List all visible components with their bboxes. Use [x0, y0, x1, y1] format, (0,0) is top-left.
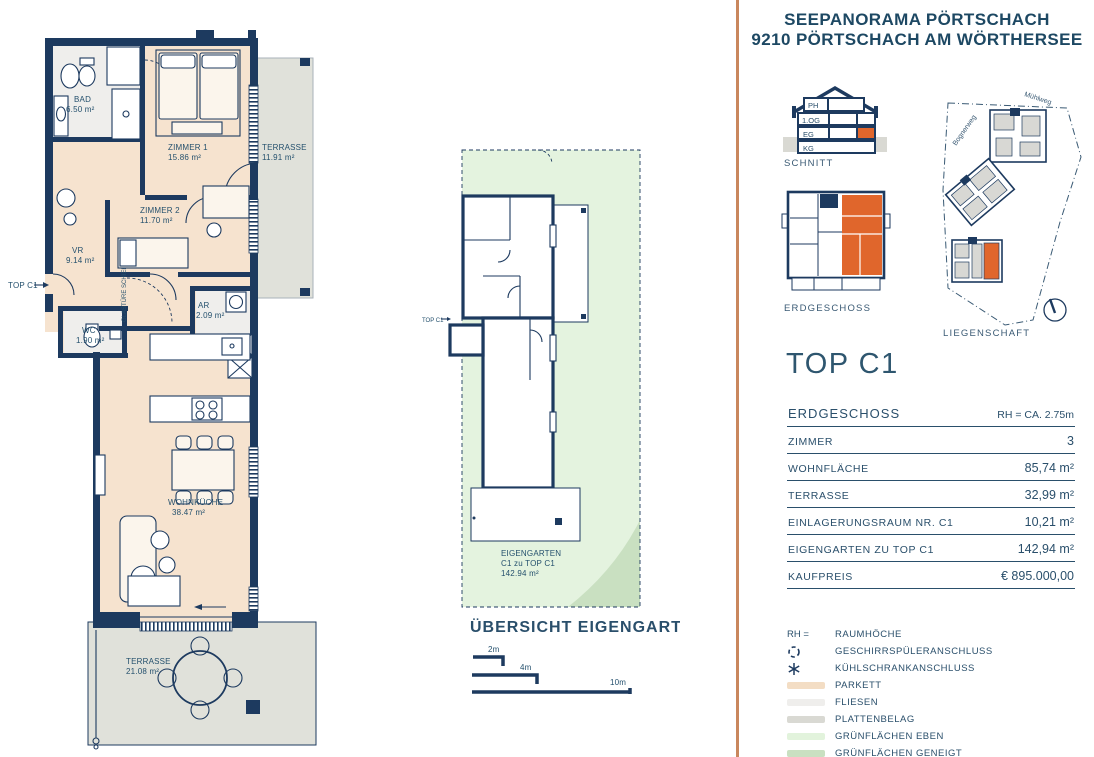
svg-text:WC: WC [82, 326, 96, 335]
building-north [990, 108, 1046, 162]
spec-row: EIGENGARTEN ZU TOP C1 142,94 m² [787, 535, 1075, 562]
dining-set [172, 436, 234, 504]
overview-entrance-label: TOP C1 [422, 317, 451, 324]
legend-row: GESCHIRRSPÜLERANSCHLUSS [787, 643, 1075, 660]
svg-text:38.47 m²: 38.47 m² [172, 508, 205, 517]
spec-row: ZIMMER 3 [787, 427, 1075, 454]
terrace-lower-area [88, 622, 316, 745]
spec-table: ERDGESCHOSS RH = CA. 2.75m ZIMMER 3 WOHN… [787, 399, 1075, 589]
svg-text:VR: VR [72, 246, 84, 255]
svg-text:ZIMMER 1: ZIMMER 1 [168, 143, 208, 152]
legend-row: GRÜNFLÄCHEN EBEN [787, 728, 1075, 745]
svg-text:4m: 4m [520, 663, 532, 672]
spec-row: WOHNFLÄCHE 85,74 m² [787, 454, 1075, 481]
site-plan-label: LIEGENSCHAFT [943, 328, 1030, 339]
svg-text:ZIMMER 2: ZIMMER 2 [140, 206, 180, 215]
section-highlight-unit [857, 127, 875, 139]
svg-text:EG: EG [803, 130, 814, 139]
parkett-swatch [787, 682, 825, 689]
svg-text:KG: KG [803, 144, 814, 153]
svg-text:2.09 m²: 2.09 m² [196, 311, 225, 320]
wc-basin [110, 330, 121, 339]
section-label: SCHNITT [784, 158, 834, 169]
gruen-geneigt-swatch [787, 750, 825, 757]
street-bognerweg: Bognerweg [952, 114, 978, 147]
spec-row: TERRASSE 32,99 m² [787, 481, 1075, 508]
svg-text:142.94 m²: 142.94 m² [501, 569, 539, 578]
floor-thumbnail [780, 186, 892, 298]
legend-row: PARKETT [787, 677, 1075, 694]
svg-text:1.90 m²: 1.90 m² [76, 336, 105, 345]
project-title: SEEPANORAMA PÖRTSCHACH [742, 10, 1092, 30]
svg-text:TERRASSE: TERRASSE [262, 143, 307, 152]
svg-text:9.14 m²: 9.14 m² [66, 256, 95, 265]
svg-text:TERRASSE: TERRASSE [126, 657, 171, 666]
svg-text:6.50 m²: 6.50 m² [66, 105, 95, 114]
spec-row: ERDGESCHOSS RH = CA. 2.75m [787, 399, 1075, 427]
building-top-c1 [952, 237, 1002, 282]
plattenbelag-swatch [787, 716, 825, 723]
desk [203, 186, 249, 218]
garden-overview-plan: TOP C1 EIGENGARTEN C1 zu TOP C1 142.94 m… [420, 130, 680, 730]
entrance-label: TOP C1 [8, 281, 49, 290]
svg-text:11.91 m²: 11.91 m² [262, 153, 295, 162]
shower [112, 89, 140, 139]
cabinet [128, 576, 180, 606]
site-plan: Bognerweg Mühlweg [932, 80, 1084, 342]
window-wohnkueche-2 [249, 587, 258, 611]
svg-text:2m: 2m [488, 645, 500, 654]
svg-text:21.08 m²: 21.08 m² [126, 667, 159, 676]
terrace-grate [140, 622, 232, 631]
toilet-bad [79, 66, 95, 86]
spec-row-price: KAUFPREIS € 895.000,00 [787, 562, 1075, 589]
legend: RH = RAUMHÖCHE GESCHIRRSPÜLERANSCHLUSS [787, 626, 1075, 757]
compass-icon [1044, 299, 1066, 321]
garden-overview-title: ÜBERSICHT EIGENGARTEN [470, 617, 680, 636]
scale-bar: 2m 4m 10m [472, 645, 630, 694]
terrace-upper-area [256, 58, 313, 298]
thumb-core [820, 194, 838, 208]
fridge-icon [787, 662, 801, 676]
vanity [54, 96, 68, 136]
window-wohnkueche-1 [249, 447, 258, 497]
coat-rack [57, 189, 75, 207]
svg-text:WOHNKÜCHE: WOHNKÜCHE [168, 498, 223, 507]
desk-chair [207, 223, 221, 237]
gruen-eben-swatch [787, 733, 825, 740]
fliesen-swatch [787, 699, 825, 706]
sideboard [95, 455, 105, 495]
section-diagram: PH 1.OG EG KG [783, 82, 887, 164]
legend-row: PLATTENBELAG [787, 711, 1075, 728]
closet [107, 47, 140, 85]
thumb-highlight-unit [842, 195, 882, 275]
svg-text:15.86 m²: 15.86 m² [168, 153, 201, 162]
svg-text:C1 zu TOP C1: C1 zu TOP C1 [501, 559, 555, 568]
svg-text:11.70 m²: 11.70 m² [140, 216, 173, 225]
legend-row: RH = RAUMHÖCHE [787, 626, 1075, 643]
page: GLASTÜRE SCHIEBETÜRE [0, 0, 1094, 757]
window-zimmer2 [249, 199, 258, 253]
building-middle [944, 157, 1014, 225]
window-zimmer1 [249, 85, 258, 163]
svg-text:PH: PH [808, 101, 818, 110]
svg-text:TOP C1: TOP C1 [422, 318, 444, 324]
bathtub-basin [61, 64, 79, 88]
dishwasher-icon [787, 645, 801, 659]
spec-row: EINLAGERUNGSRAUM NR. C1 10,21 m² [787, 508, 1075, 535]
svg-text:10m: 10m [610, 678, 626, 687]
floorplan-top-c1: GLASTÜRE SCHIEBETÜRE [0, 0, 340, 757]
floor-thumbnail-label: ERDGESCHOSS [784, 303, 871, 314]
svg-text:AR: AR [198, 301, 210, 310]
site-highlight-unit [984, 243, 999, 279]
coffee-table [151, 531, 169, 549]
svg-text:1.OG: 1.OG [802, 116, 820, 125]
legend-row: GRÜNFLÄCHEN GENEIGT [787, 745, 1075, 757]
legend-row: KÜHLSCHRANKANSCHLUSS [787, 660, 1075, 677]
svg-text:BAD: BAD [74, 95, 91, 104]
panel-divider [736, 0, 739, 757]
svg-text:TOP C1: TOP C1 [8, 281, 38, 290]
legend-row: FLIESEN [787, 694, 1075, 711]
unit-title: TOP C1 [786, 348, 899, 381]
project-address: 9210 PÖRTSCHACH AM WÖRTHERSEE [742, 30, 1092, 50]
svg-text:EIGENGARTEN: EIGENGARTEN [501, 549, 561, 558]
project-header: SEEPANORAMA PÖRTSCHACH 9210 PÖRTSCHACH A… [742, 10, 1092, 50]
street-muehlweg: Mühlweg [1023, 91, 1052, 106]
